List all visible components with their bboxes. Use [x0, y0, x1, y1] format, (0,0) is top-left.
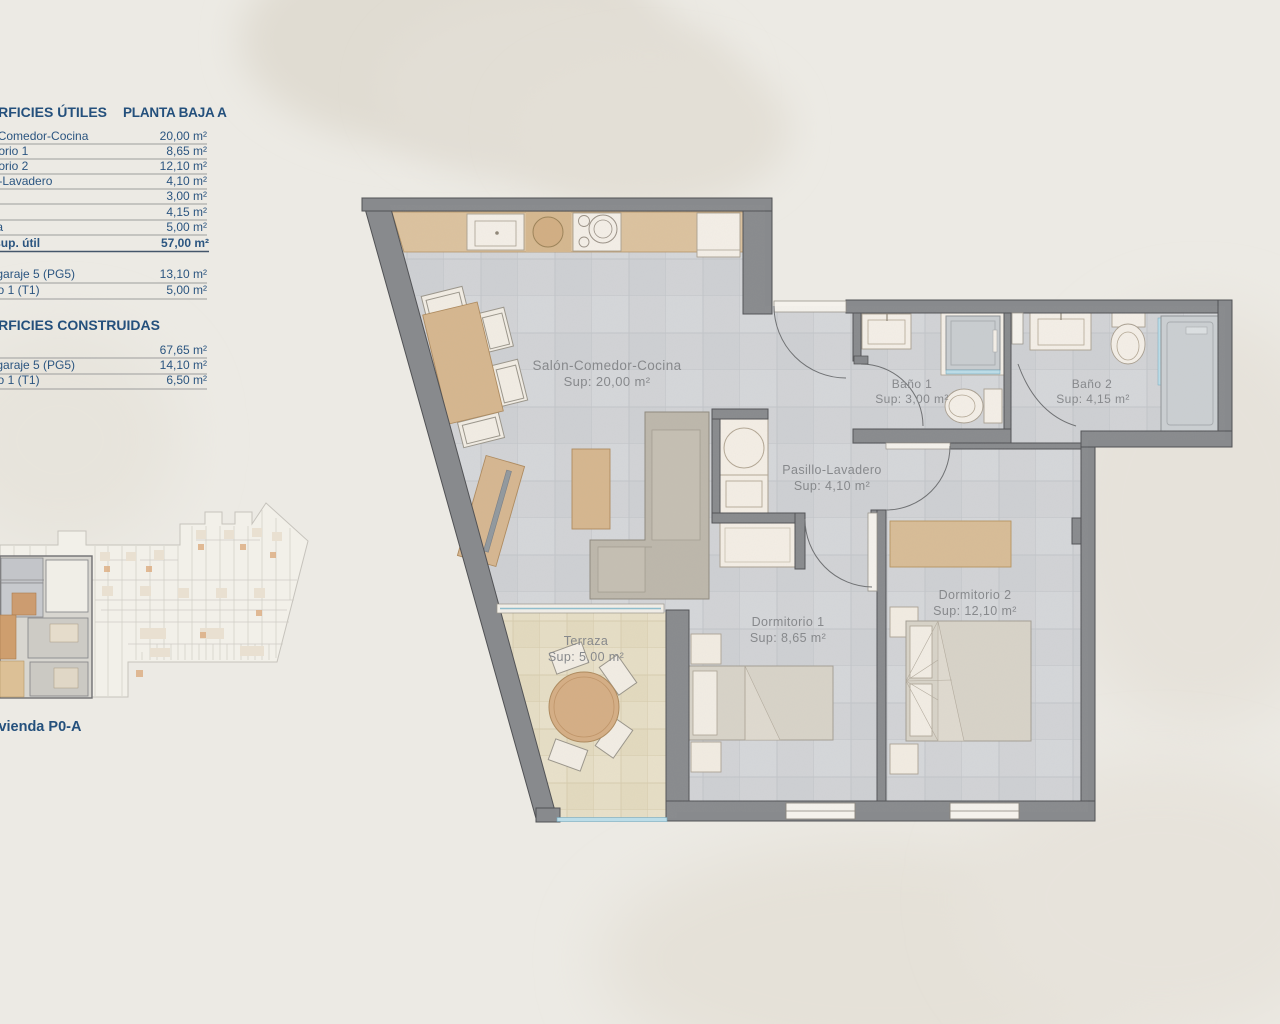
svg-text:12,10 m²: 12,10 m² — [160, 159, 207, 173]
svg-text:Dormitorio 2: Dormitorio 2 — [0, 159, 29, 173]
svg-text:Trastero 1 (T1): Trastero 1 (T1) — [0, 283, 40, 297]
svg-text:4,15 m²: 4,15 m² — [166, 205, 207, 219]
svg-text:Terraza: Terraza — [564, 634, 608, 648]
svg-text:Pasillo-Lavadero: Pasillo-Lavadero — [782, 463, 882, 477]
svg-text:8,65 m²: 8,65 m² — [166, 144, 207, 158]
svg-text:Sup: 12,10 m²: Sup: 12,10 m² — [933, 604, 1017, 618]
svg-text:Total sup. útil: Total sup. útil — [0, 236, 40, 250]
svg-text:14,10 m²: 14,10 m² — [160, 358, 207, 372]
svg-text:Sup: 8,65 m²: Sup: 8,65 m² — [750, 631, 826, 645]
svg-text:Sup: 3,00 m²: Sup: 3,00 m² — [875, 392, 949, 406]
svg-text:4,10 m²: 4,10 m² — [166, 174, 207, 188]
svg-text:Baño 1: Baño 1 — [892, 377, 932, 391]
svg-text:Salón-Comedor-Cocina: Salón-Comedor-Cocina — [532, 358, 681, 373]
svg-text:Sup: 4,10 m²: Sup: 4,10 m² — [794, 479, 870, 493]
svg-text:13,10 m²: 13,10 m² — [160, 267, 207, 281]
svg-text:Dormitorio 1: Dormitorio 1 — [752, 615, 825, 629]
svg-text:Baño 2: Baño 2 — [1072, 377, 1112, 391]
svg-text:20,00 m²: 20,00 m² — [160, 129, 207, 143]
svg-text:5,00 m²: 5,00 m² — [166, 220, 207, 234]
svg-text:67,65 m²: 67,65 m² — [160, 343, 207, 357]
svg-text:SUPERFICIES ÚTILES: SUPERFICIES ÚTILES — [0, 103, 107, 120]
svg-text:Sup: 4,15 m²: Sup: 4,15 m² — [1056, 392, 1130, 406]
svg-text:Trastero 1 (T1): Trastero 1 (T1) — [0, 373, 40, 387]
svg-text:5,00 m²: 5,00 m² — [166, 283, 207, 297]
svg-text:Plaza garaje 5 (PG5): Plaza garaje 5 (PG5) — [0, 267, 75, 281]
svg-text:Dormitorio 1: Dormitorio 1 — [0, 144, 29, 158]
svg-text:Sup: 5,00 m²: Sup: 5,00 m² — [548, 650, 624, 664]
svg-text:Plaza garaje 5 (PG5): Plaza garaje 5 (PG5) — [0, 358, 75, 372]
svg-text:Salón-Comedor-Cocina: Salón-Comedor-Cocina — [0, 129, 89, 143]
svg-text:Terraza: Terraza — [0, 220, 3, 234]
svg-text:SUPERFICIES CONSTRUIDAS: SUPERFICIES CONSTRUIDAS — [0, 317, 160, 333]
svg-text:57,00 m²: 57,00 m² — [161, 236, 209, 250]
svg-text:Vivienda P0-A: Vivienda P0-A — [0, 719, 82, 735]
svg-text:PLANTA BAJA A: PLANTA BAJA A — [123, 105, 227, 120]
svg-text:Sup: 20,00 m²: Sup: 20,00 m² — [564, 374, 651, 389]
svg-text:Dormitorio 2: Dormitorio 2 — [939, 588, 1012, 602]
svg-text:3,00 m²: 3,00 m² — [166, 189, 207, 203]
svg-text:Pasillo-Lavadero: Pasillo-Lavadero — [0, 174, 53, 188]
svg-text:6,50 m²: 6,50 m² — [166, 373, 207, 387]
